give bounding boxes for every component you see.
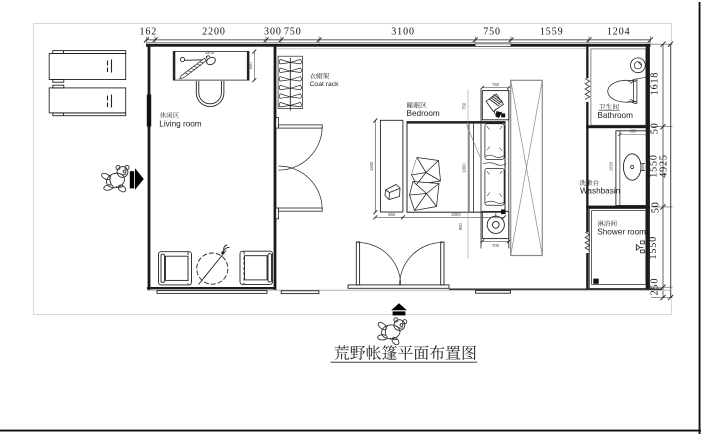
svg-text:2200: 2200	[202, 27, 226, 38]
svg-text:1800: 1800	[462, 163, 467, 173]
svg-text:Washbasin: Washbasin	[580, 187, 621, 196]
svg-text:3100: 3100	[391, 27, 415, 38]
svg-text:Living room: Living room	[159, 119, 202, 128]
svg-text:50: 50	[651, 201, 662, 213]
svg-text:450: 450	[388, 212, 396, 217]
svg-text:4925: 4925	[659, 154, 670, 178]
svg-text:300: 300	[264, 27, 282, 38]
svg-text:1400: 1400	[205, 50, 215, 55]
svg-text:1618: 1618	[650, 72, 661, 96]
svg-text:750: 750	[492, 82, 500, 87]
svg-text:1800: 1800	[369, 161, 374, 171]
svg-text:750: 750	[284, 27, 302, 38]
svg-text:162: 162	[139, 27, 157, 38]
svg-text:50: 50	[650, 122, 661, 134]
svg-text:600: 600	[248, 62, 253, 70]
svg-text:750: 750	[483, 27, 501, 38]
svg-text:1550: 1550	[609, 161, 614, 171]
svg-text:1559: 1559	[540, 27, 564, 38]
svg-text:Bathroom: Bathroom	[597, 111, 633, 120]
svg-text:2000: 2000	[451, 212, 461, 217]
svg-text:250: 250	[650, 278, 661, 296]
svg-text:Shower room: Shower room	[597, 228, 646, 237]
svg-text:750: 750	[462, 102, 467, 110]
svg-text:800: 800	[458, 223, 463, 231]
svg-text:Coat rack: Coat rack	[310, 81, 340, 88]
svg-text:Bedroom: Bedroom	[407, 109, 440, 118]
svg-text:700: 700	[492, 243, 500, 248]
svg-text:1204: 1204	[607, 27, 631, 38]
svg-text:600: 600	[630, 129, 638, 134]
